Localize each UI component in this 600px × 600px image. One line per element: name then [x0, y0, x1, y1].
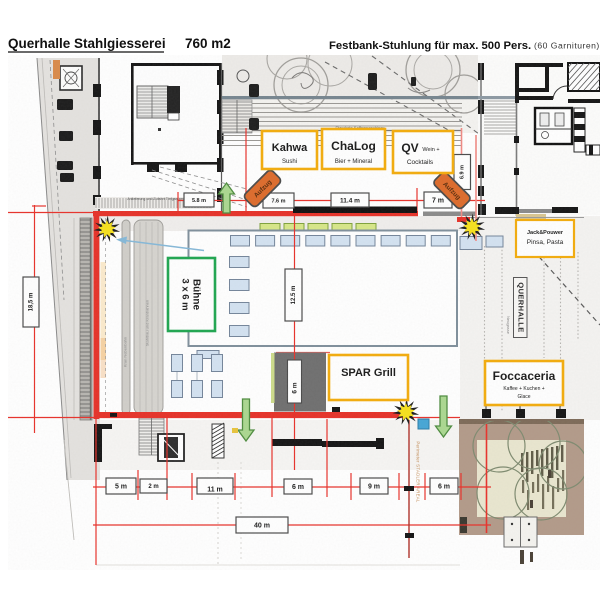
svg-text:760 m2: 760 m2 [185, 36, 231, 51]
svg-text:Querhalle Stahlgiesserei: Querhalle Stahlgiesserei [8, 36, 166, 51]
svg-text:(60 Garnituren): (60 Garnituren) [534, 41, 600, 51]
svg-text:Festbank-Stuhlung für max. 500: Festbank-Stuhlung für max. 500 Pers. [329, 40, 531, 52]
